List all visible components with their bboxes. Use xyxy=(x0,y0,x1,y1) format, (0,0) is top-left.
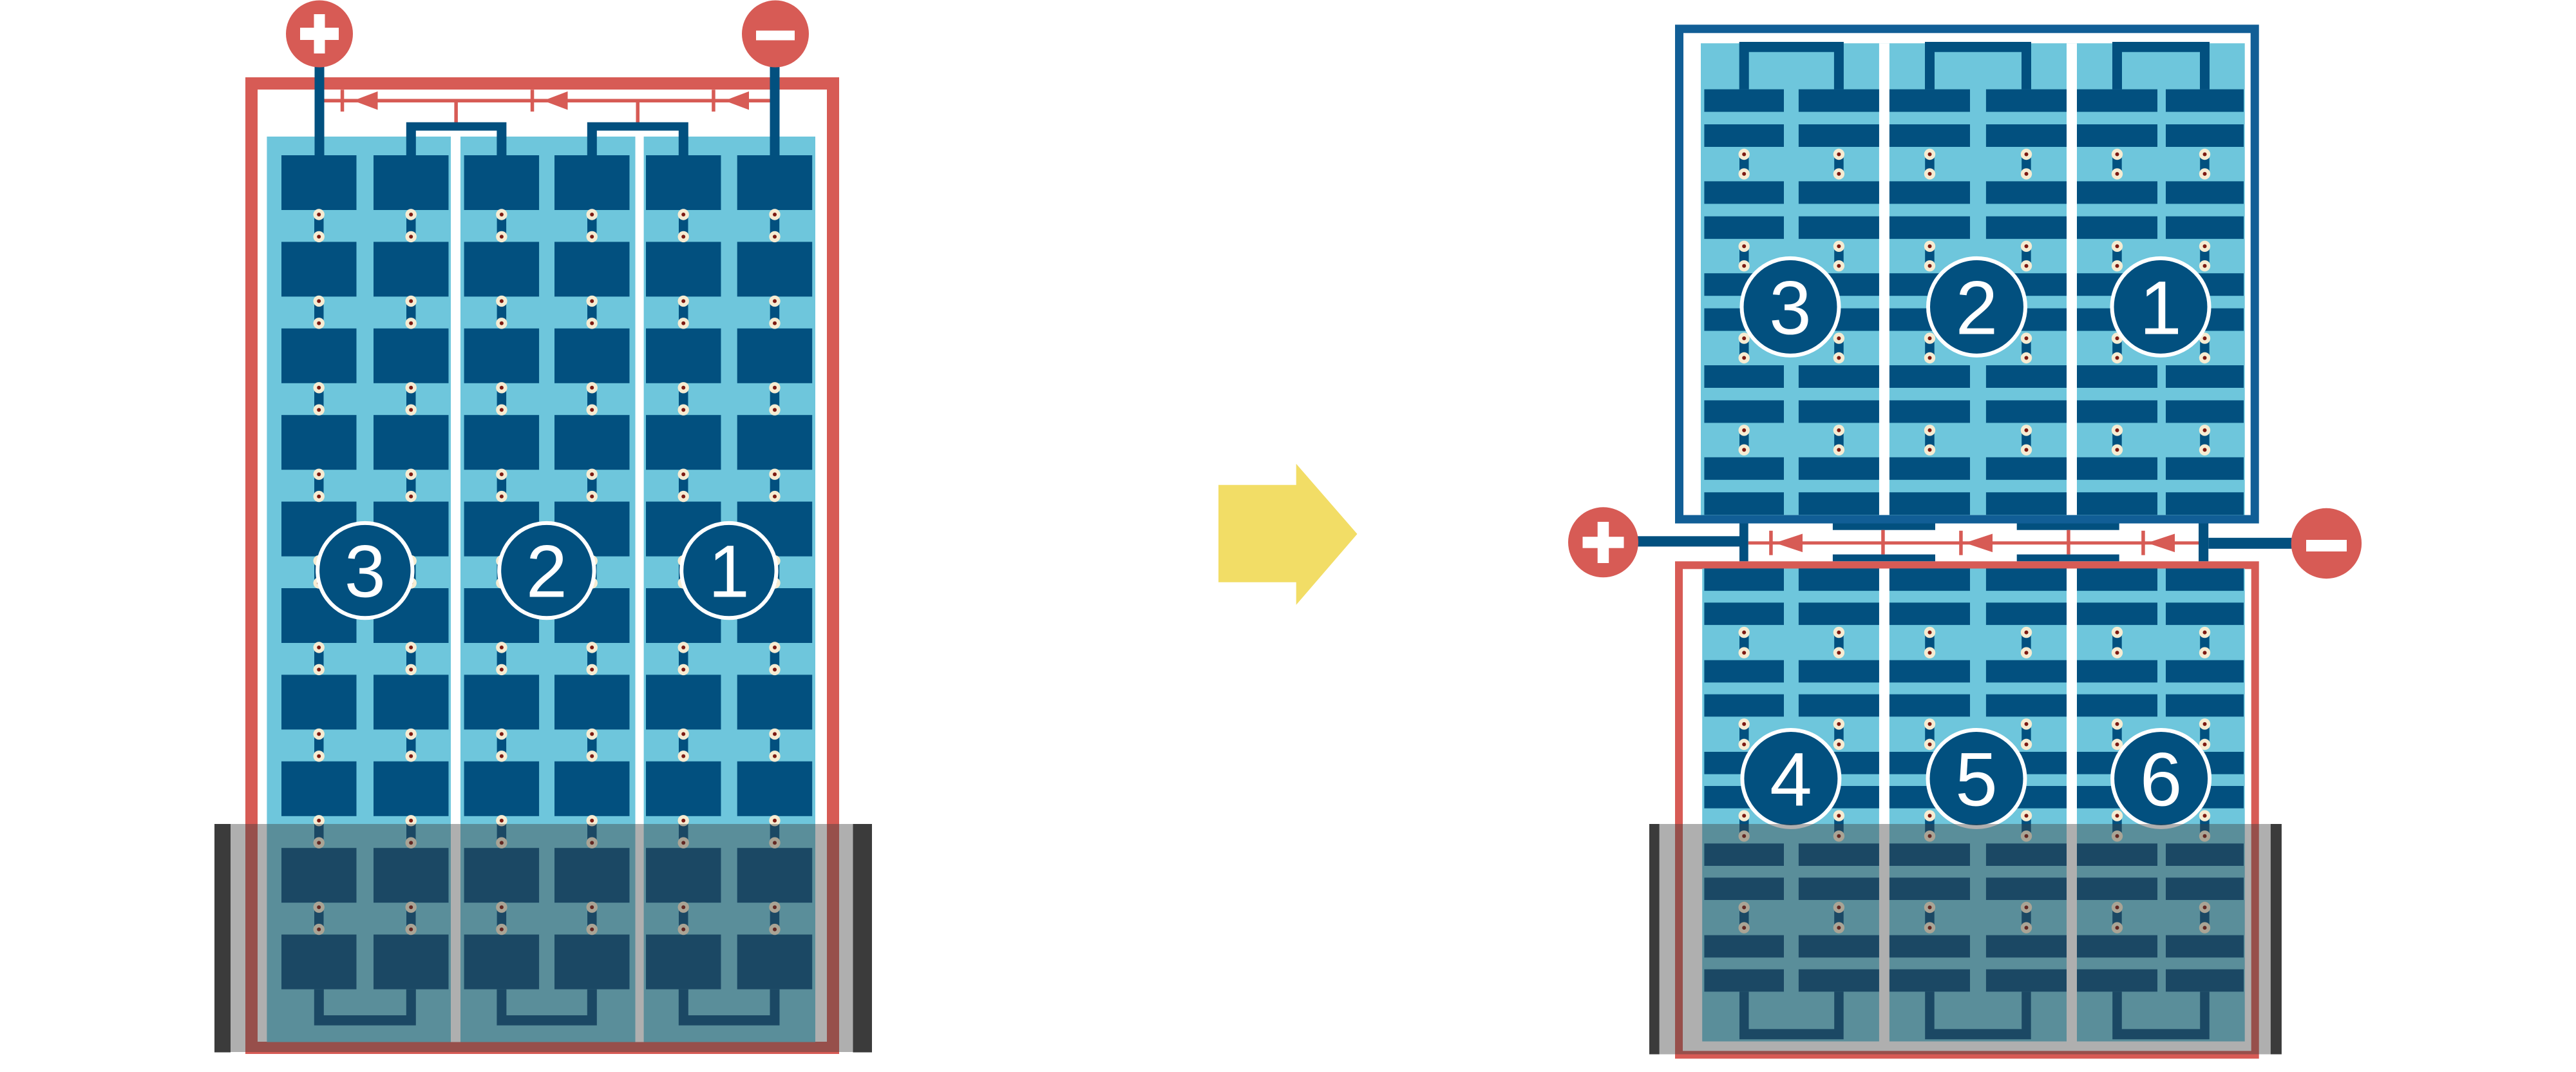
svg-text:3: 3 xyxy=(1769,265,1812,350)
svg-text:5: 5 xyxy=(1955,737,1998,822)
svg-text:1: 1 xyxy=(2139,265,2182,350)
svg-text:2: 2 xyxy=(526,530,567,613)
svg-text:4: 4 xyxy=(1770,737,1812,822)
svg-text:1: 1 xyxy=(708,530,750,613)
svg-text:3: 3 xyxy=(345,530,386,613)
svg-text:2: 2 xyxy=(1956,265,1998,350)
svg-text:6: 6 xyxy=(2140,737,2183,822)
